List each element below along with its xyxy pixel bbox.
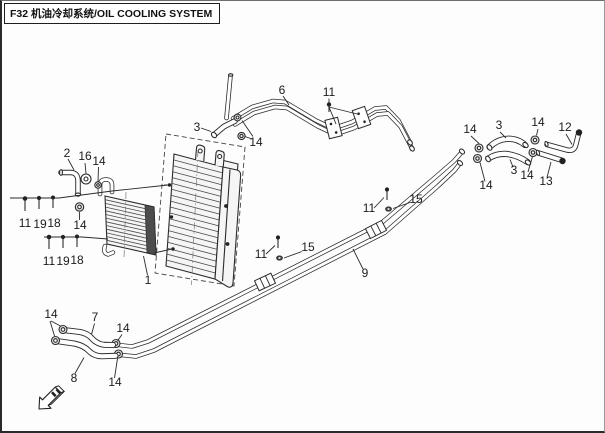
callout-16: 16 — [78, 149, 92, 163]
parts-diagram-page: F32 机油冷却系统/OIL COOLING SYSTEM — [0, 0, 605, 433]
callout-6: 6 — [279, 83, 286, 97]
callout-2: 2 — [64, 146, 71, 160]
callout-14: 14 — [44, 307, 58, 321]
callout-13: 13 — [539, 174, 553, 188]
callout-9: 9 — [362, 266, 369, 280]
callout-14: 14 — [520, 168, 534, 182]
callout-3: 3 — [194, 120, 201, 134]
oil-hose-3-right-lower — [485, 154, 532, 166]
pipe-mount-set-a — [276, 235, 283, 260]
callout-18: 18 — [70, 253, 84, 267]
callout-18: 18 — [47, 216, 61, 230]
diagram-canvas: 2 16 14 11 19 18 14 11 19 18 1 3 14 6 11… — [2, 1, 605, 433]
callout-14: 14 — [249, 135, 263, 149]
callout-11: 11 — [43, 254, 56, 268]
callout-15: 15 — [409, 192, 423, 206]
callout-14: 14 — [92, 154, 106, 168]
callout-11: 11 — [19, 216, 32, 230]
callout-19: 19 — [33, 217, 47, 231]
radiator-reference — [155, 134, 245, 287]
callout-12: 12 — [558, 120, 572, 134]
callout-7: 7 — [92, 310, 99, 324]
callout-14: 14 — [531, 115, 545, 129]
callout-14: 14 — [116, 321, 130, 335]
washer-14 — [95, 182, 101, 188]
pipe-mount-set-b — [385, 187, 392, 211]
callout-14: 14 — [73, 218, 87, 232]
callout-11: 11 — [323, 85, 336, 99]
callout-15: 15 — [301, 240, 315, 254]
clamp-bolt-11 — [327, 102, 331, 106]
nut-14 — [75, 203, 83, 211]
callout-14: 14 — [108, 375, 122, 389]
front-direction-arrow-icon — [39, 386, 64, 409]
oil-hose-3-right-upper — [486, 139, 529, 151]
callout-11: 11 — [363, 201, 376, 215]
pipe-clamp-block — [325, 117, 342, 139]
oil-pipe-9 — [112, 148, 465, 358]
washer-16 — [81, 174, 91, 184]
callout-1: 1 — [145, 273, 152, 287]
page-title: F32 机油冷却系统/OIL COOLING SYSTEM — [4, 3, 220, 24]
oil-cooler-inlet-hose — [60, 170, 81, 196]
callout-14: 14 — [479, 178, 493, 192]
callout-3: 3 — [496, 118, 503, 132]
callout-3: 3 — [511, 163, 518, 177]
callout-14: 14 — [463, 122, 477, 136]
callout-11: 11 — [255, 247, 268, 261]
callout-19: 19 — [56, 254, 70, 268]
callout-8: 8 — [71, 371, 78, 385]
